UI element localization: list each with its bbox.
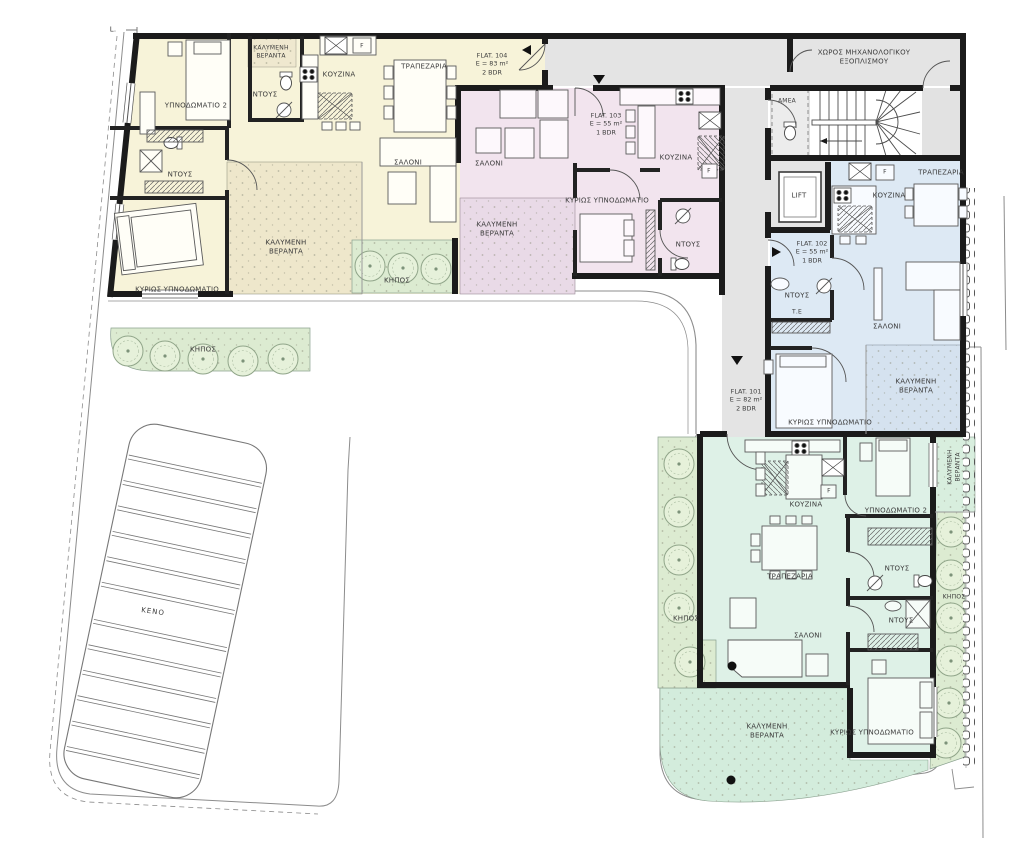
garden-label-4: ΚΗΠΟΣ	[943, 593, 965, 601]
garden-label-3: ΚΗΠΟΣ	[673, 615, 699, 624]
flat102-shower-label: ΝΤΟΥΣ	[785, 292, 810, 301]
flat104-salon-label: ΣΑΛΟΝΙ	[394, 159, 422, 168]
flat102-dining-label: ΤΡΑΠΕΖΑΡΙΑ	[918, 169, 964, 178]
flat103-fridge-label: F	[707, 167, 711, 175]
datum-mark	[126, 27, 137, 33]
flat103-kitchen-label: ΚΟΥΖΙΝΑ	[660, 154, 693, 163]
flat102-fridge-label: F	[883, 168, 887, 176]
flat103-title: FLAT. 103	[590, 112, 622, 120]
flat101-master-label: ΚΥΡΙΩΣ ΥΠΝΟΔΩΜΑΤΙΟ	[826, 729, 918, 738]
flat102-laundry-label: Τ.Ε	[792, 308, 802, 316]
flat102-salon-label: ΣΑΛΟΝΙ	[873, 323, 901, 332]
flat103-area: E = 55 m²	[590, 120, 622, 128]
flat102-area: E = 55 m²	[796, 248, 828, 256]
flat101-area: E = 82 m²	[730, 396, 762, 404]
flat102-veranda-label: ΚΑΛΥΜΕΝΗ ΒΕΡΑΝΤΑ	[884, 377, 948, 395]
mechanical-room-label: ΧΩΡΟΣ ΜΗΧΑΝΟΛΟΓΙΚΟΥ ΕΞΟΠΛΙΣΜΟΥ	[808, 48, 920, 66]
floor-plan: L. FLAT. 104 E = 83 m² 2 BDR ΚΑΛΥΜΕΝΗ ΒΕ…	[0, 0, 1026, 844]
flat101-side-veranda-label: ΚΑΛΥΜΕΝΗ ΒΕΡΑΝΤΑ	[947, 444, 962, 490]
flat101-fridge-label: F	[827, 487, 831, 495]
flat103-bdr: 1 BDR	[590, 128, 622, 136]
flat104-kitchen-label: ΚΟΥΖΙΝΑ	[323, 71, 356, 80]
staircase	[812, 90, 920, 156]
flat104-title-block: FLAT. 104 E = 83 m² 2 BDR	[476, 52, 508, 77]
flat101-shower1-label: ΝΤΟΥΣ	[885, 565, 910, 574]
flat103-shower-label: ΝΤΟΥΣ	[676, 241, 701, 250]
flat104-fridge-label: F	[360, 42, 364, 50]
flat104-small-veranda-label: ΚΑΛΥΜΕΝΗ ΒΕΡΑΝΤΑ	[248, 45, 294, 60]
flat102-kitchen-label: ΚΟΥΖΙΝΑ	[873, 192, 906, 201]
flat103-title-block: FLAT. 103 E = 55 m² 1 BDR	[590, 112, 622, 137]
flat104-shower1-label: ΝΤΟΥΣ	[253, 91, 278, 100]
garden-label-1: ΚΗΠΟΣ	[190, 346, 216, 355]
flat102-title: FLAT. 102	[796, 240, 828, 248]
flat101-dining-label: ΤΡΑΠΕΖΑΡΙΑ	[767, 573, 813, 582]
accessible-wc-label: ΑΜΕΑ	[778, 97, 796, 105]
flat104-bdr: 2 BDR	[476, 68, 508, 76]
flat104-shower2-label: ΝΤΟΥΣ	[168, 171, 193, 180]
lift-label: LIFT	[792, 192, 807, 201]
flat101-title: FLAT. 101	[730, 388, 762, 396]
void-ramp	[59, 419, 271, 802]
garden-label-2: ΚΗΠΟΣ	[384, 277, 410, 286]
flat102-master-label: ΚΥΡΙΩΣ ΥΠΝΟΔΩΜΑΤΙΟ	[787, 419, 873, 428]
corridor-fill	[722, 88, 768, 437]
flat101-kitchen-label: ΚΟΥΖΙΝΑ	[790, 501, 823, 510]
flat101-veranda-label: ΚΑΛΥΜΕΝΗ ΒΕΡΑΝΤΑ	[735, 722, 799, 740]
flat102-title-block: FLAT. 102 E = 55 m² 1 BDR	[796, 240, 828, 265]
flat103-veranda-label: ΚΑΛΥΜΕΝΗ ΒΕΡΑΝΤΑ	[467, 220, 527, 238]
flat101-title-block: FLAT. 101 E = 82 m² 2 BDR	[730, 388, 762, 413]
flat101-shower2-label: ΝΤΟΥΣ	[889, 617, 914, 626]
flat103-master-label: ΚΥΡΙΩΣ ΥΠΝΟΔΩΜΑΤΙΟ	[561, 197, 653, 206]
flat101-salon-label: ΣΑΛΟΝΙ	[794, 632, 822, 641]
flat104-title: FLAT. 104	[476, 52, 508, 60]
flat104-area: E = 83 m²	[476, 60, 508, 68]
datum-label: L.	[110, 26, 117, 35]
flat104-dining-label: ΤΡΑΠΕΖΑΡΙΑ	[401, 63, 447, 72]
flat101-bedroom2-label: ΥΠΝΟΔΩΜΑΤΙΟ 2	[865, 507, 927, 516]
flat104-master-label: ΚΥΡΙΩΣ ΥΠΝΟΔΩΜΑΤΙΟ	[134, 286, 220, 295]
flat104-bedroom2-label: ΥΠΝΟΔΩΜΑΤΙΟ 2	[165, 102, 227, 111]
flat104-veranda-label: ΚΑΛΥΜΕΝΗ ΒΕΡΑΝΤΑ	[256, 238, 316, 256]
flat103-salon-label: ΣΑΛΟΝΙ	[475, 160, 503, 169]
flat102-bdr: 1 BDR	[796, 256, 828, 264]
flat101-bdr: 2 BDR	[730, 404, 762, 412]
